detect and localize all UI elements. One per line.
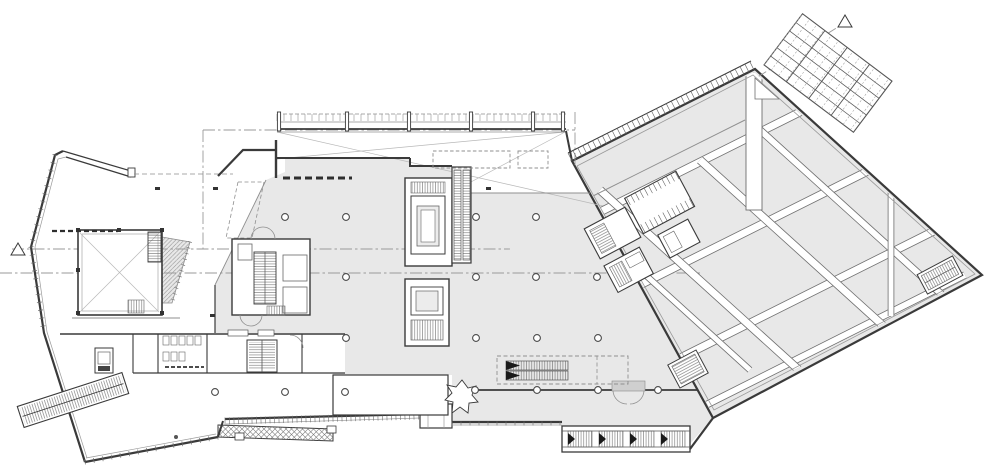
column [595, 387, 602, 394]
column-square [160, 228, 164, 232]
wall-mark [210, 314, 215, 317]
column-square [76, 311, 80, 315]
section-marker-east [838, 15, 852, 27]
wall-mark [486, 187, 491, 190]
wc-fixture [187, 336, 193, 345]
column [473, 274, 480, 281]
column [473, 335, 480, 342]
wc-fixture [171, 336, 177, 345]
column [533, 214, 540, 221]
escalator-lane [463, 170, 470, 260]
entry-wedge-inner [66, 157, 131, 177]
wall-mark [213, 187, 218, 190]
hall-nw-chamfer-wall [218, 150, 276, 176]
column [473, 214, 480, 221]
wc-fixture [179, 336, 185, 345]
floor-plan-canvas [0, 0, 1000, 468]
column-square [160, 311, 164, 315]
floor-plan-sheet [0, 0, 1000, 468]
column [212, 389, 219, 396]
canopy-post [561, 112, 564, 131]
column [534, 387, 541, 394]
wall-mark [155, 187, 160, 190]
entry-wedge-cap [128, 168, 135, 177]
auditorium-steps [128, 300, 144, 313]
equipment-shaft-dark [98, 366, 110, 371]
column [534, 335, 541, 342]
core-lower-steps [411, 320, 443, 340]
column [655, 387, 662, 394]
southwest-facade-inner [86, 434, 216, 458]
lobby-column-dot [174, 435, 178, 439]
column [594, 274, 601, 281]
lobby-door-post [327, 426, 336, 433]
entrance-mat [612, 381, 645, 391]
canopy-post [407, 112, 410, 131]
column [282, 214, 289, 221]
wc-fixture [179, 352, 185, 361]
wc-fixture [163, 352, 169, 361]
wc-fixture [195, 336, 201, 345]
auditorium-stair [148, 232, 161, 262]
window-sill [258, 330, 274, 336]
elevator-cab-inner [421, 210, 435, 242]
core-steps [267, 306, 285, 315]
hall-north-wall-step [410, 158, 452, 166]
column [595, 335, 602, 342]
core-upper-steps [411, 182, 445, 193]
column [343, 274, 350, 281]
canopy-post [531, 112, 534, 131]
retail-room [333, 375, 448, 415]
column [343, 335, 350, 342]
column [533, 274, 540, 281]
canopy-post [277, 112, 280, 131]
wc-fixture [171, 352, 177, 361]
window-sill [228, 330, 248, 336]
canopy-mullions [277, 114, 564, 121]
column [342, 389, 349, 396]
southwest-facade [85, 437, 218, 462]
entry-wedge-outer [63, 151, 131, 171]
canopy-wing-link-wall [566, 131, 572, 161]
switchback-ramp [17, 373, 128, 428]
column [472, 387, 479, 394]
column-square [76, 268, 80, 272]
furniture-dashed [518, 151, 548, 168]
core-lower-cab [416, 291, 438, 311]
canopy-post [345, 112, 348, 131]
lobby-door-post [235, 433, 244, 440]
column [343, 214, 350, 221]
escalator-lane [454, 170, 461, 260]
column [282, 389, 289, 396]
wc-fixture [163, 336, 169, 345]
canopy-post [469, 112, 472, 131]
ramp-hatch [162, 237, 190, 303]
